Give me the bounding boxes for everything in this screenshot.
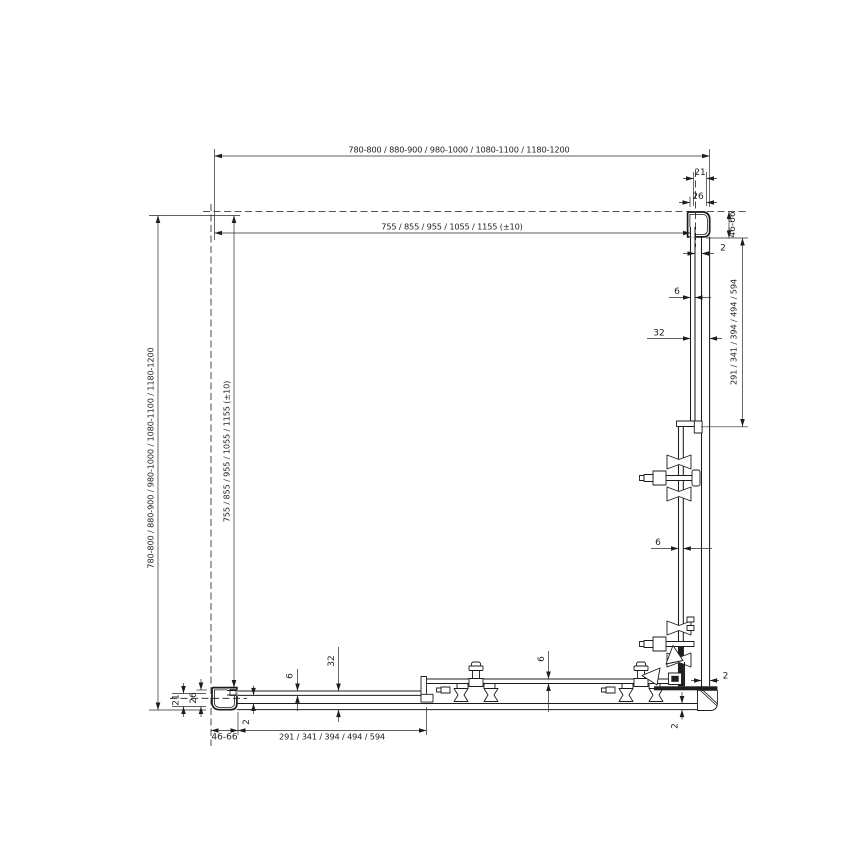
dim-corner-gap-v: 2 (671, 723, 681, 729)
dim-glass-height: 755 / 855 / 955 / 1055 / 1155 (±10) (222, 381, 232, 522)
dimension-labels: 780-800 / 880-900 / 980-1000 / 1080-1100… (146, 145, 739, 743)
dim-glass-thickness-bottom: 6 (286, 673, 296, 679)
dim-glass-thickness-right: 6 (674, 287, 680, 297)
dim-panel-length-right: 291 / 341 / 394 / 494 / 594 (729, 279, 739, 385)
corner-bracket (698, 690, 718, 710)
dim-adjustment-bottom: 46-66 (211, 733, 237, 743)
dim-offset-bottom: 32 (327, 655, 337, 666)
dim-profile-face-left: 26 (189, 692, 199, 704)
roller-right-upper (640, 455, 701, 501)
bottom-rail-corner-band (654, 686, 717, 690)
dim-adjustment-right: 46-66 (728, 211, 738, 237)
dim-profile-face-top: 26 (692, 192, 704, 202)
technical-drawing: 780-800 / 880-900 / 980-1000 / 1080-1100… (0, 0, 868, 868)
dim-door-glass-right: 6 (655, 538, 661, 548)
dim-profile-width-left: 21 (172, 694, 182, 705)
drawing-canvas: 780-800 / 880-900 / 980-1000 / 1080-1100… (0, 0, 868, 868)
bottom-assembly (212, 662, 698, 710)
dim-corner-gap-h: 2 (723, 672, 729, 682)
right-fixed-glass (691, 225, 696, 428)
roller-bottom-left (437, 662, 499, 702)
dim-door-glass-bottom: 6 (537, 656, 547, 662)
right-assembly (640, 212, 710, 690)
dim-gap-right-top: 2 (720, 244, 726, 254)
dim-overall-width: 780-800 / 880-900 / 980-1000 / 1080-1100… (348, 145, 569, 155)
dim-gap-bottom-left: 2 (242, 719, 252, 725)
dim-panel-length-bottom: 291 / 341 / 394 / 494 / 594 (279, 732, 385, 742)
dim-overall-height: 780-800 / 880-900 / 980-1000 / 1080-1100… (146, 347, 156, 568)
dim-glass-width: 755 / 855 / 955 / 1055 / 1155 (±10) (381, 222, 522, 232)
dim-offset-right: 32 (653, 329, 664, 339)
dim-profile-width-top: 21 (694, 168, 705, 178)
bottom-fixed-glass (227, 691, 427, 695)
roller-right-corner (640, 617, 695, 667)
